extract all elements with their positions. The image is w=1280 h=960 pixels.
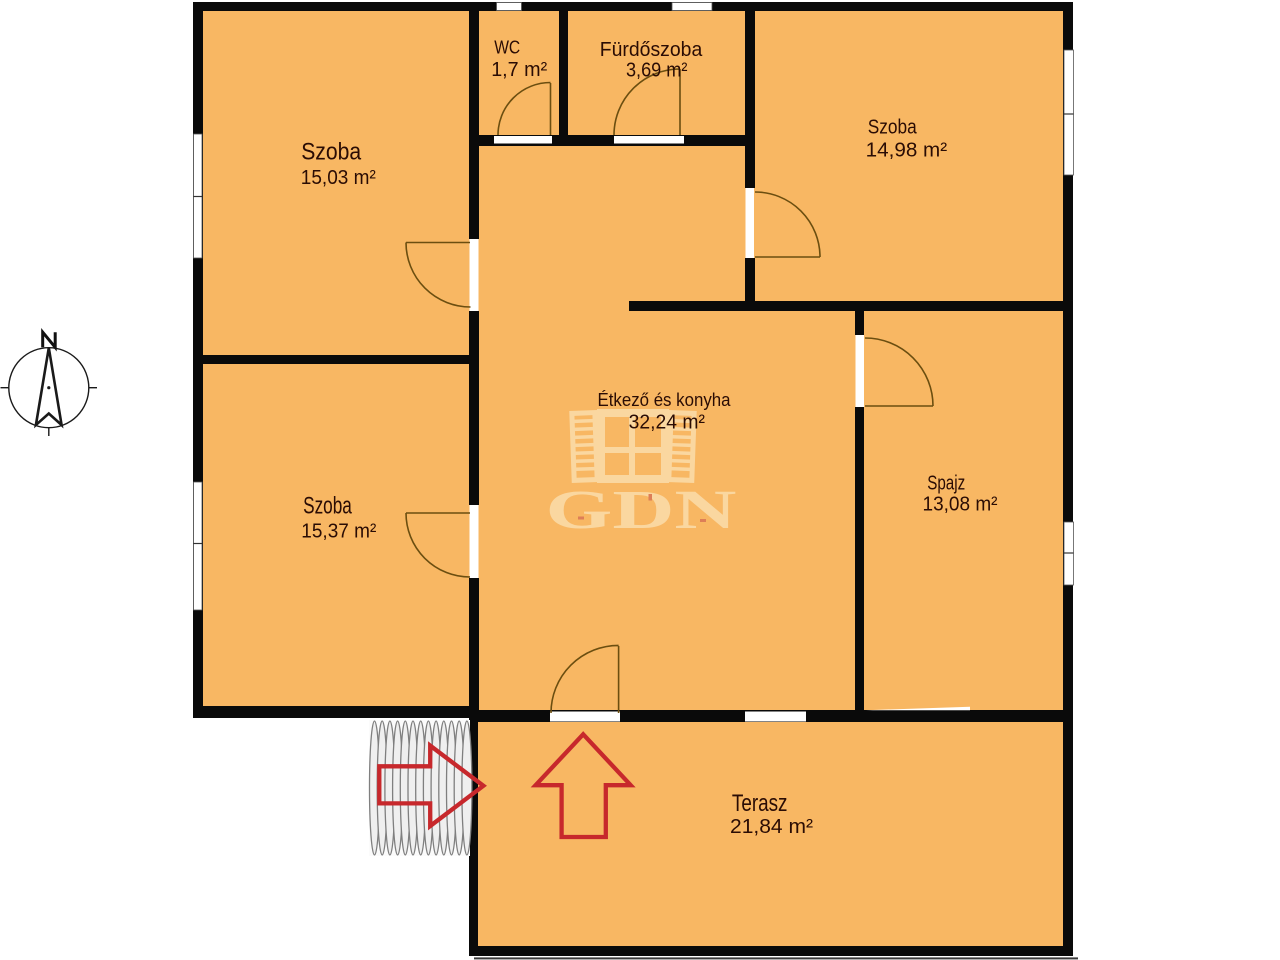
- svg-text:Szoba: Szoba: [303, 493, 352, 520]
- svg-text:Étkező és konyha: Étkező és konyha: [598, 390, 732, 410]
- svg-text:Terasz: Terasz: [732, 790, 788, 817]
- svg-text:1,7 m²: 1,7 m²: [491, 58, 547, 81]
- svg-text:Spajz: Spajz: [927, 472, 965, 495]
- svg-text:GDN: GDN: [546, 479, 737, 540]
- svg-text:Szoba: Szoba: [301, 138, 361, 165]
- svg-text:3,69 m²: 3,69 m²: [626, 59, 688, 82]
- svg-text:32,24 m²: 32,24 m²: [629, 412, 706, 434]
- svg-text:WC: WC: [494, 36, 520, 57]
- svg-text:15,37 m²: 15,37 m²: [301, 520, 376, 543]
- svg-text:14,98 m²: 14,98 m²: [866, 139, 948, 162]
- svg-text:Szoba: Szoba: [868, 116, 917, 139]
- svg-text:13,08 m²: 13,08 m²: [923, 494, 998, 516]
- svg-text:15,03 m²: 15,03 m²: [301, 166, 376, 189]
- svg-text:21,84 m²: 21,84 m²: [730, 815, 813, 838]
